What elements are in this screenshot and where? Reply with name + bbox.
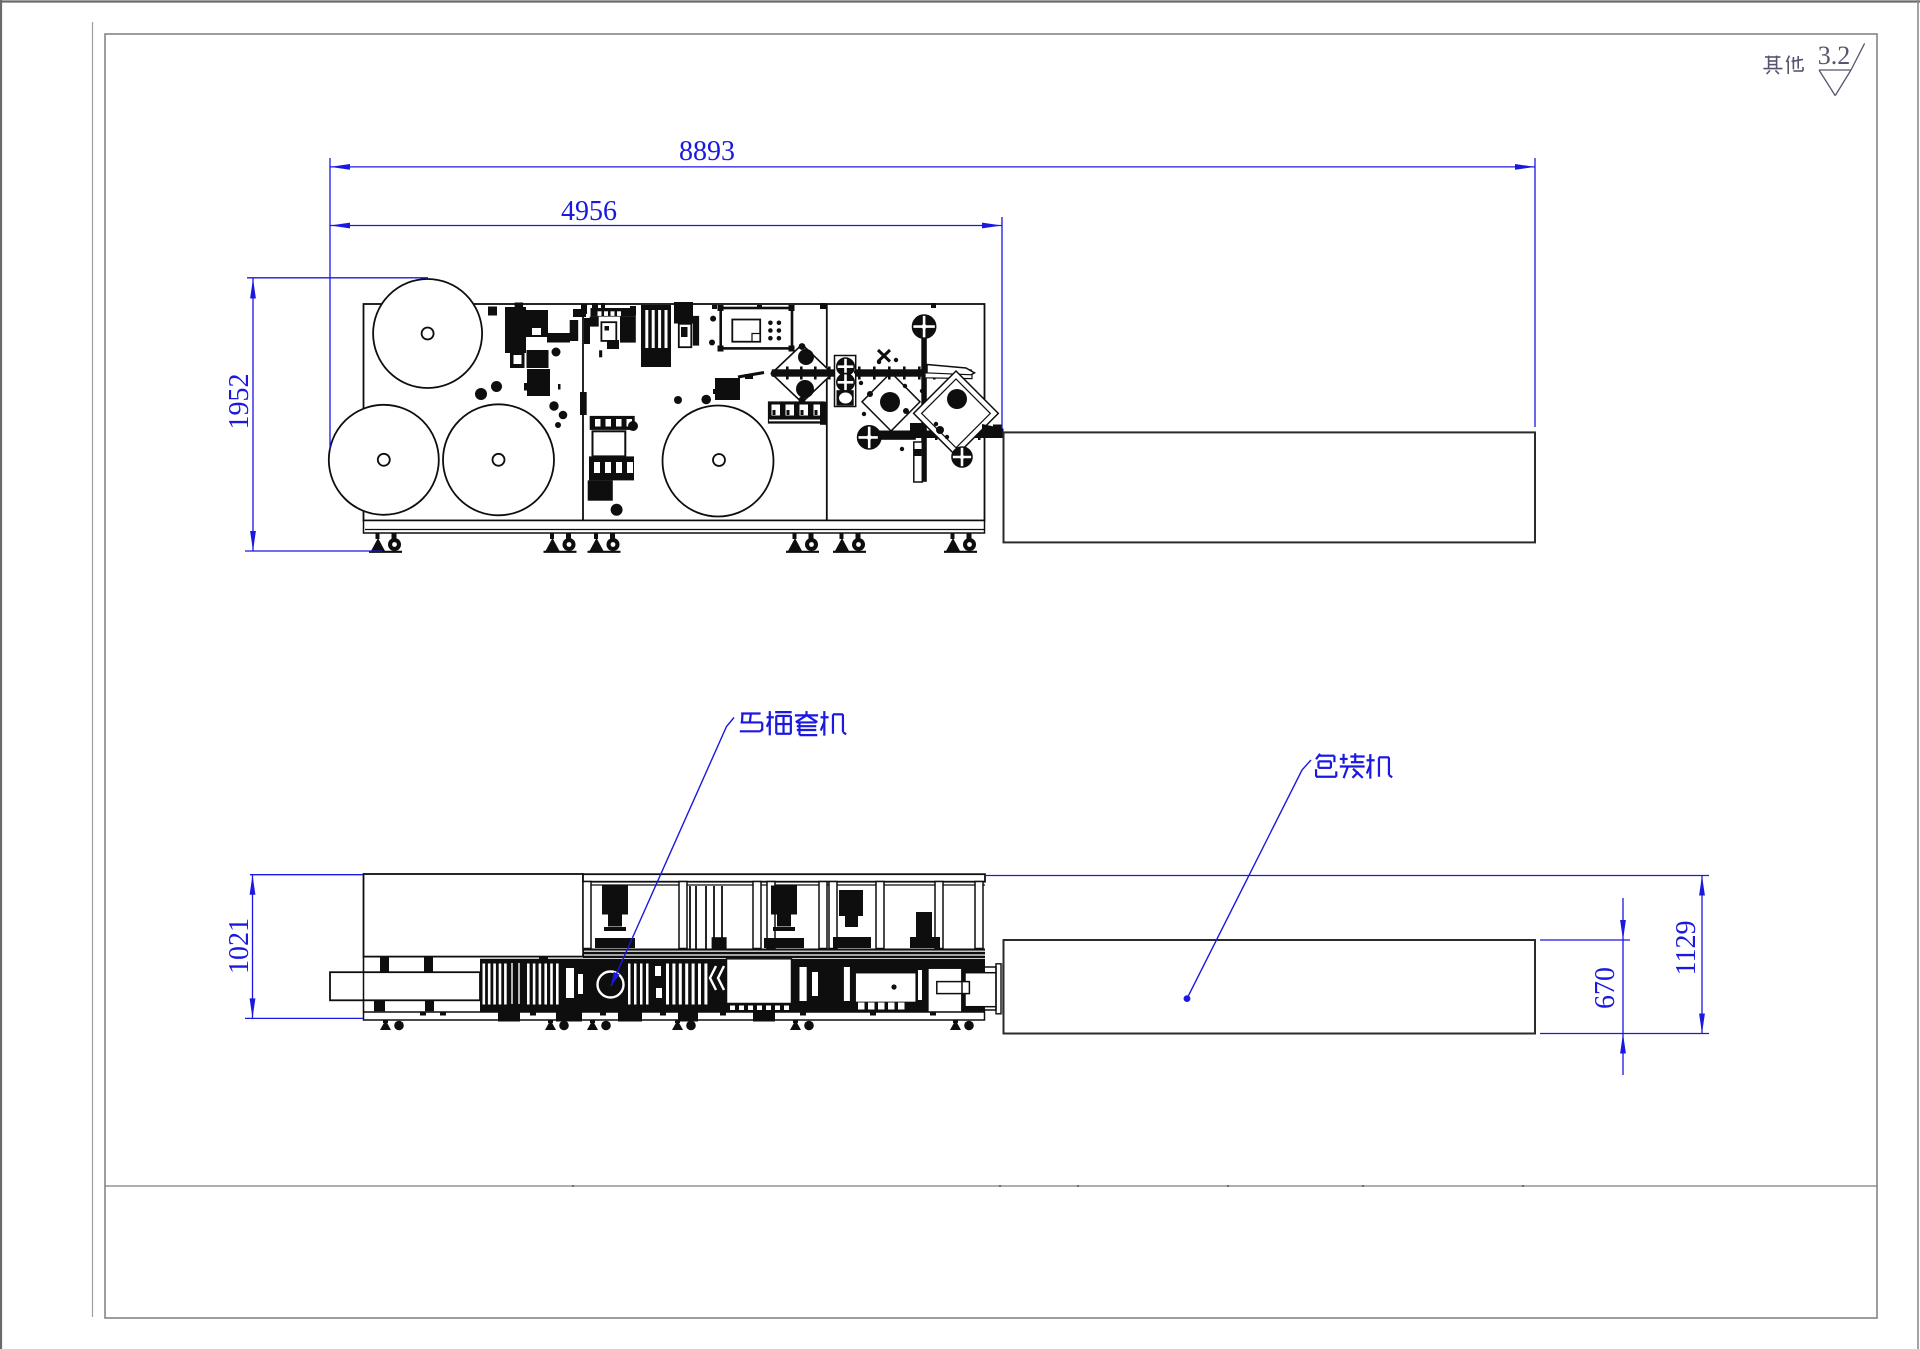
- svg-text:1021: 1021: [224, 918, 255, 974]
- svg-text:8893: 8893: [679, 136, 735, 167]
- svg-text:1952: 1952: [224, 374, 255, 430]
- svg-text:4956: 4956: [561, 196, 617, 227]
- svg-text:670: 670: [1590, 967, 1621, 1009]
- svg-text:3.2: 3.2: [1818, 41, 1851, 70]
- svg-text:1129: 1129: [1671, 921, 1702, 976]
